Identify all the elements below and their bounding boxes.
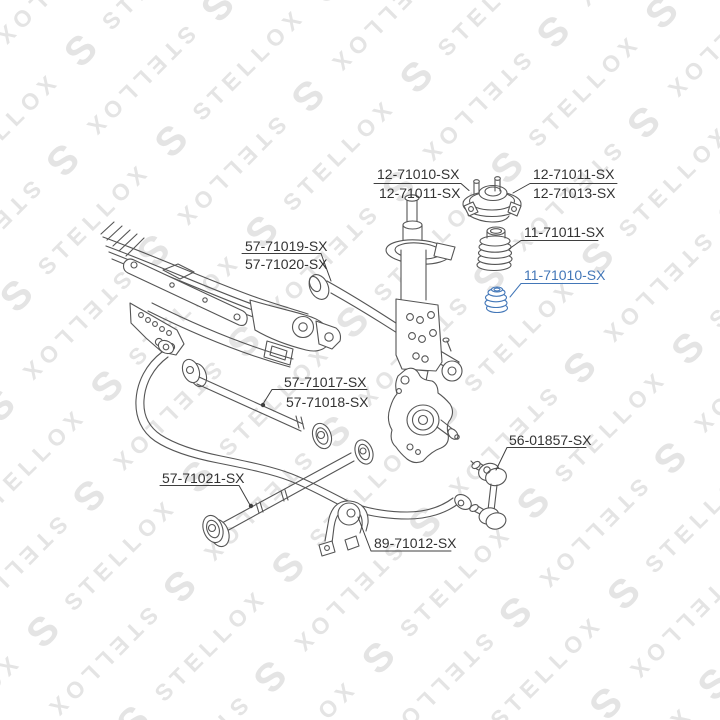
stabilizer-link-drawing <box>469 460 509 531</box>
part-label-strut-mount-left-1[interactable]: 12-71010-SX <box>377 167 460 181</box>
part-label-strut-mount-right-1[interactable]: 12-71011-SX <box>533 167 614 181</box>
part-label-dust-boot[interactable]: 11-71011-SX <box>524 225 604 239</box>
strut-mount-drawing <box>463 177 521 222</box>
part-label-stab-link[interactable]: 56-01857-SX <box>509 433 592 447</box>
stab-bushing-clamp-drawing <box>319 501 368 556</box>
highlight-annotation-line <box>510 284 598 298</box>
dust-boot-drawing <box>477 227 512 271</box>
part-label-lateral-rod[interactable]: 57-71021-SX <box>162 471 245 485</box>
part-label-tie-rod-1[interactable]: 57-71017-SX <box>284 375 367 389</box>
part-label-tie-rod-2[interactable]: 57-71018-SX <box>286 395 369 409</box>
part-label-bump-stop-highlighted[interactable]: 11-71010-SX <box>524 268 605 282</box>
part-label-strut-mount-left-2[interactable]: 12-71011-SX <box>379 186 460 200</box>
suspension-exploded-diagram <box>0 0 720 720</box>
bump-stop-drawing[interactable] <box>485 287 508 313</box>
part-label-stab-bushing[interactable]: 89-71012-SX <box>374 536 457 550</box>
knuckle-hub-drawing <box>388 368 460 462</box>
part-label-strut-mount-right-2[interactable]: 12-71013-SX <box>533 186 616 200</box>
parts-diagram-page: SSTELLOXSSTELLOXSSTELLOXSSTELLOXSSTELLOX… <box>0 0 720 720</box>
part-label-upper-arm-2[interactable]: 57-71020-SX <box>245 257 328 271</box>
part-label-upper-arm-1[interactable]: 57-71019-SX <box>245 239 328 253</box>
